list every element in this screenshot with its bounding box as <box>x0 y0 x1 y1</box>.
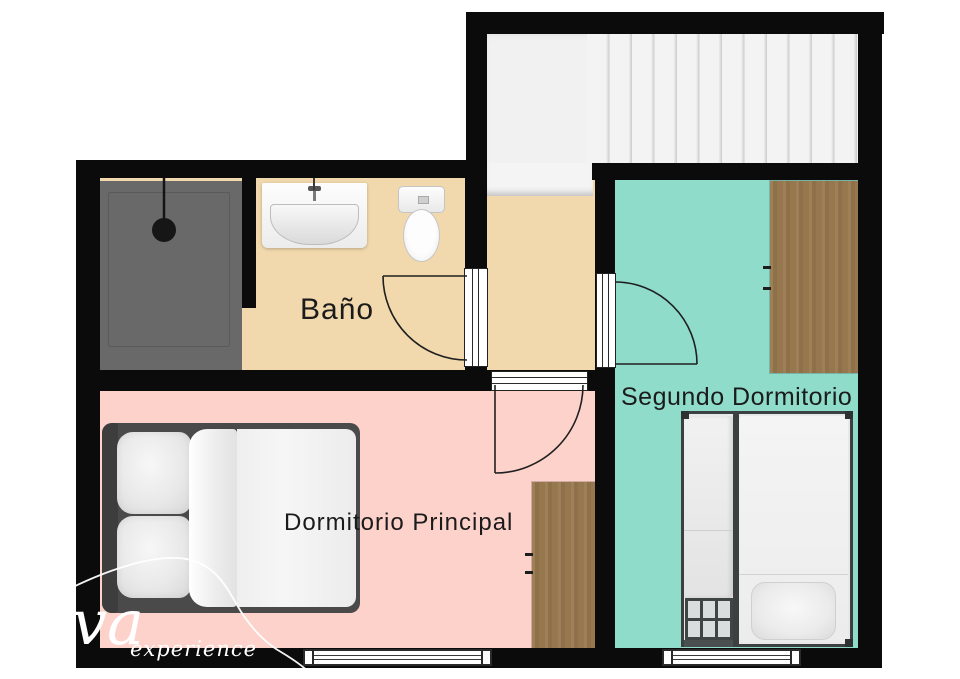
toilet-bowl <box>403 209 440 262</box>
bunk-mattress-left <box>684 416 733 598</box>
bed-post <box>845 639 853 647</box>
second-bedroom-window <box>662 649 801 666</box>
wall-top-second-bedroom <box>592 163 858 180</box>
toilet-flush-button <box>418 196 429 204</box>
bathroom-label: Baño <box>300 293 374 327</box>
bed-headboard <box>102 423 118 613</box>
main-bedroom-door-frame <box>491 371 588 391</box>
hallway-floor <box>487 178 595 370</box>
shower-tray-outline <box>108 192 230 347</box>
staircase <box>487 30 858 163</box>
bed-post <box>681 411 689 419</box>
window-cap <box>662 649 673 666</box>
wall-shower-stub <box>242 178 256 308</box>
wardrobe-handle <box>763 287 771 290</box>
stair-steps <box>587 30 858 163</box>
bathroom-sink <box>262 183 367 248</box>
wall-bathroom-hall-upper <box>465 160 487 268</box>
shower-tray <box>100 181 242 371</box>
sink-basin <box>270 204 359 245</box>
wardrobe-handle <box>763 266 771 269</box>
wardrobe-handle <box>525 571 533 574</box>
window-cap <box>303 649 314 666</box>
window-cap <box>790 649 801 666</box>
mattress-seam <box>684 530 733 531</box>
window-cap <box>481 649 492 666</box>
stair-landing <box>487 163 593 196</box>
wall-center <box>595 163 615 648</box>
main-bedroom-wardrobe <box>532 482 595 648</box>
wall-top-bathroom <box>76 160 487 178</box>
wall-stair-left <box>466 12 487 162</box>
bathroom-door-frame <box>464 268 488 367</box>
sink-faucet-icon <box>308 186 321 191</box>
wall-stair-top <box>466 12 884 34</box>
bunk-base <box>684 640 733 647</box>
wall-right <box>858 12 882 668</box>
duvet-fold <box>189 429 237 607</box>
ladder-rung <box>688 618 730 621</box>
mattress-seam <box>739 574 848 575</box>
pillow <box>751 582 836 640</box>
bunk-mattress-right <box>739 416 848 642</box>
bunk-ladder <box>685 598 733 640</box>
second-bedroom-label: Segundo Dormitorio <box>621 383 852 412</box>
main-bedroom-window <box>303 649 492 666</box>
floor-plan: Baño Segundo Dormitorio Dormitorio Princ… <box>0 0 960 679</box>
bed-post <box>845 411 853 419</box>
bunk-bed <box>681 411 853 647</box>
second-bedroom-door-frame <box>596 273 616 368</box>
watermark-tagline: experience <box>130 637 257 661</box>
second-bedroom-wardrobe <box>770 181 858 373</box>
main-bedroom-label: Dormitorio Principal <box>284 509 513 537</box>
pillow <box>117 432 191 514</box>
wardrobe-handle <box>525 553 533 556</box>
